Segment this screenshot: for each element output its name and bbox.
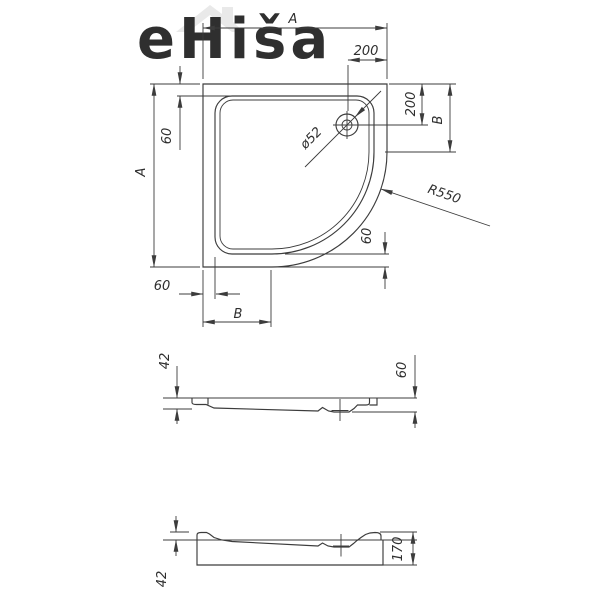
dim-drain-diameter: ø52: [297, 125, 326, 154]
dim-200-right: 200: [404, 92, 419, 117]
watermark-text: eHiša: [137, 7, 332, 72]
dim-60-top-left: 60: [160, 128, 175, 145]
dim-60-curve: 60: [360, 228, 375, 245]
dim-b-right: B: [431, 115, 446, 124]
section2-reference-lines: [163, 532, 417, 565]
section1-dim-42: 42: [158, 353, 173, 370]
section2-dim-170: 170: [391, 537, 406, 562]
section2-drain-mark: [333, 534, 349, 557]
shower-tray-drawing: eHiša A 200 200 B: [0, 0, 600, 600]
dim-60-bottom-left: 60: [154, 279, 171, 294]
section1-drain-mark: [332, 399, 349, 421]
dim-corner-radius: R550: [426, 182, 463, 207]
section2-dim-42: 42: [155, 571, 170, 588]
dim-b-bottom: B: [234, 307, 243, 322]
section1-dim-60: 60: [395, 362, 410, 379]
section2-panel-box: [197, 540, 383, 565]
dim-a-top: A: [288, 12, 298, 27]
section1-tray-profile: [192, 398, 377, 412]
basin-outer-contour: [215, 96, 374, 254]
dim-200-top: 200: [354, 44, 379, 59]
watermark: eHiša: [137, 5, 332, 72]
technical-drawing-page: eHiša A 200 200 B: [0, 0, 600, 600]
dim-a-left: A: [134, 168, 149, 178]
section-view-flat: 42 60: [158, 353, 417, 428]
section-view-panel: 42 170: [155, 516, 417, 587]
